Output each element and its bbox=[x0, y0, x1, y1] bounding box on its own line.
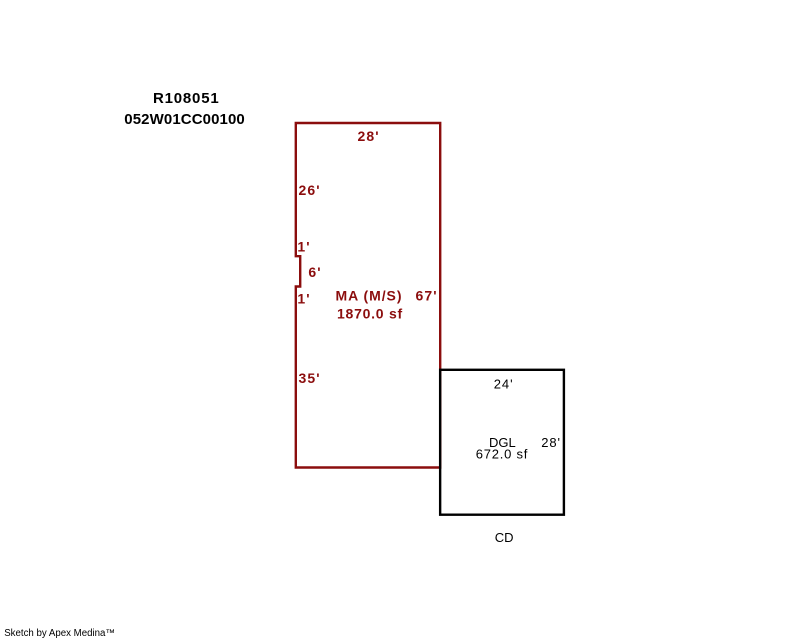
svg-text:052W01CC00100: 052W01CC00100 bbox=[124, 111, 245, 128]
svg-text:24': 24' bbox=[494, 377, 514, 392]
svg-text:26': 26' bbox=[299, 182, 321, 198]
svg-text:1': 1' bbox=[297, 239, 310, 255]
svg-text:1870.0 sf: 1870.0 sf bbox=[337, 306, 403, 322]
svg-text:67': 67' bbox=[416, 288, 438, 304]
svg-text:28': 28' bbox=[358, 128, 380, 144]
svg-text:35': 35' bbox=[299, 370, 321, 386]
svg-text:28': 28' bbox=[541, 435, 561, 450]
svg-text:R108051: R108051 bbox=[153, 90, 220, 107]
svg-text:672.0 sf: 672.0 sf bbox=[476, 447, 528, 462]
svg-text:6': 6' bbox=[308, 264, 321, 280]
svg-text:CD: CD bbox=[495, 530, 514, 545]
svg-text:1': 1' bbox=[297, 291, 310, 307]
svg-text:Sketch by Apex Medina™: Sketch by Apex Medina™ bbox=[4, 628, 115, 639]
svg-text:MA (M/S): MA (M/S) bbox=[336, 288, 403, 304]
